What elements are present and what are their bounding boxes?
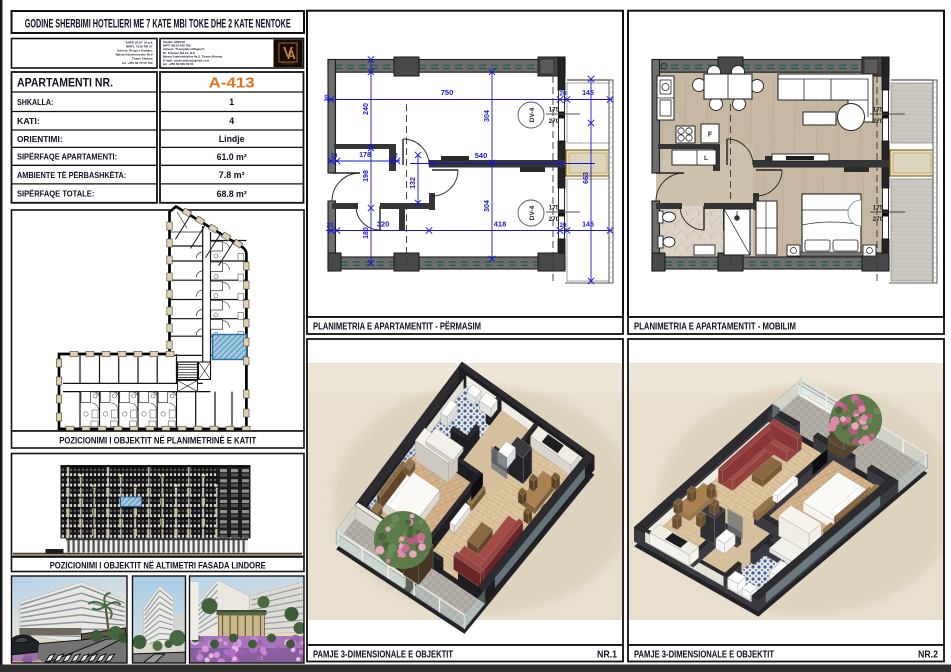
svg-text:540: 540 <box>475 151 488 160</box>
svg-text:750: 750 <box>441 88 454 97</box>
svg-text:ORIENTIMI:: ORIENTIMI: <box>17 134 63 144</box>
svg-text:198: 198 <box>363 170 370 182</box>
svg-text:A-413: A-413 <box>209 75 255 92</box>
svg-text:240: 240 <box>363 103 370 115</box>
svg-text:NR.2: NR.2 <box>918 650 938 661</box>
svg-text:132: 132 <box>410 177 417 189</box>
svg-text:180: 180 <box>363 227 370 239</box>
svg-text:145: 145 <box>582 222 594 229</box>
svg-text:L: L <box>704 155 708 162</box>
svg-text:PLANIMETRIA E APARTAMENTIT - P: PLANIMETRIA E APARTAMENTIT - PËRMASIM <box>313 320 481 333</box>
svg-text:POZICIONIMI I OBJEKTIT NË ALTI: POZICIONIMI I OBJEKTIT NË ALTIMETRI FASA… <box>50 560 266 571</box>
svg-text:270: 270 <box>873 118 884 125</box>
svg-text:1: 1 <box>229 97 234 107</box>
svg-text:SIPËRFAQE APARTAMENTI:: SIPËRFAQE APARTAMENTI: <box>17 152 117 162</box>
svg-text:663: 663 <box>583 172 590 184</box>
svg-text:GODINE SHERBIMI HOTELIERI ME 7: GODINE SHERBIMI HOTELIERI ME 7 KATE MBI … <box>25 19 291 31</box>
svg-text:20: 20 <box>331 154 338 160</box>
svg-text:PAMJE 3-DIMENSIONALE E OBJEKTI: PAMJE 3-DIMENSIONALE E OBJEKTIT <box>634 650 774 661</box>
svg-text:68.8 m²: 68.8 m² <box>217 189 247 199</box>
svg-text:F: F <box>708 132 713 139</box>
svg-text:20: 20 <box>324 94 331 102</box>
svg-text:175: 175 <box>873 205 884 212</box>
svg-text:APARTAMENTI NR.: APARTAMENTI NR. <box>17 78 113 90</box>
svg-text:AMBIENTE TË PËRBASHKËTA:: AMBIENTE TË PËRBASHKËTA: <box>17 170 126 180</box>
svg-text:4: 4 <box>229 116 234 126</box>
svg-text:KATI:: KATI: <box>17 116 40 126</box>
svg-text:20: 20 <box>559 91 567 98</box>
svg-text:Lindje: Lindje <box>219 134 245 144</box>
svg-text:S T U D I O: S T U D I O <box>282 63 294 66</box>
svg-text:145: 145 <box>582 90 594 97</box>
svg-text:270: 270 <box>549 216 560 223</box>
svg-text:7.8 m²: 7.8 m² <box>219 170 245 180</box>
svg-text:20: 20 <box>327 223 334 229</box>
svg-text:270: 270 <box>549 118 560 125</box>
svg-text:PAMJE 3-DIMENSIONALE E OBJEKTI: PAMJE 3-DIMENSIONALE E OBJEKTIT <box>313 650 453 661</box>
svg-text:A: A <box>287 48 296 62</box>
svg-text:tel: +355 69 70 50 700: tel: +355 69 70 50 700 <box>122 61 153 65</box>
svg-text:270: 270 <box>873 216 884 223</box>
svg-text:PLANIMETRIA E APARTAMENTIT - M: PLANIMETRIA E APARTAMENTIT - MOBILIM <box>634 322 796 333</box>
svg-text:20: 20 <box>560 223 567 229</box>
svg-text:DV-4: DV-4 <box>529 205 536 220</box>
svg-text:61.0 m²: 61.0 m² <box>217 152 247 162</box>
svg-text:178: 178 <box>359 152 371 159</box>
svg-text:304: 304 <box>484 200 491 212</box>
svg-text:175: 175 <box>549 205 560 212</box>
svg-text:NR.1: NR.1 <box>597 650 617 661</box>
svg-text:320: 320 <box>377 220 390 229</box>
svg-text:tel: +355 69 000 00 00: tel: +355 69 000 00 00 <box>163 62 194 66</box>
svg-text:DV-4: DV-4 <box>529 107 536 122</box>
svg-text:POZICIONIMI I OBJEKTIT NË PLAN: POZICIONIMI I OBJEKTIT NË PLANIMETRINË E… <box>59 436 256 447</box>
svg-text:175: 175 <box>873 107 884 114</box>
svg-text:418: 418 <box>494 220 507 229</box>
svg-text:SHKALLA:: SHKALLA: <box>17 97 53 107</box>
svg-text:304: 304 <box>484 110 491 122</box>
svg-text:SIPËRFAQE TOTALE:: SIPËRFAQE TOTALE: <box>17 189 94 199</box>
svg-text:175: 175 <box>549 107 560 114</box>
